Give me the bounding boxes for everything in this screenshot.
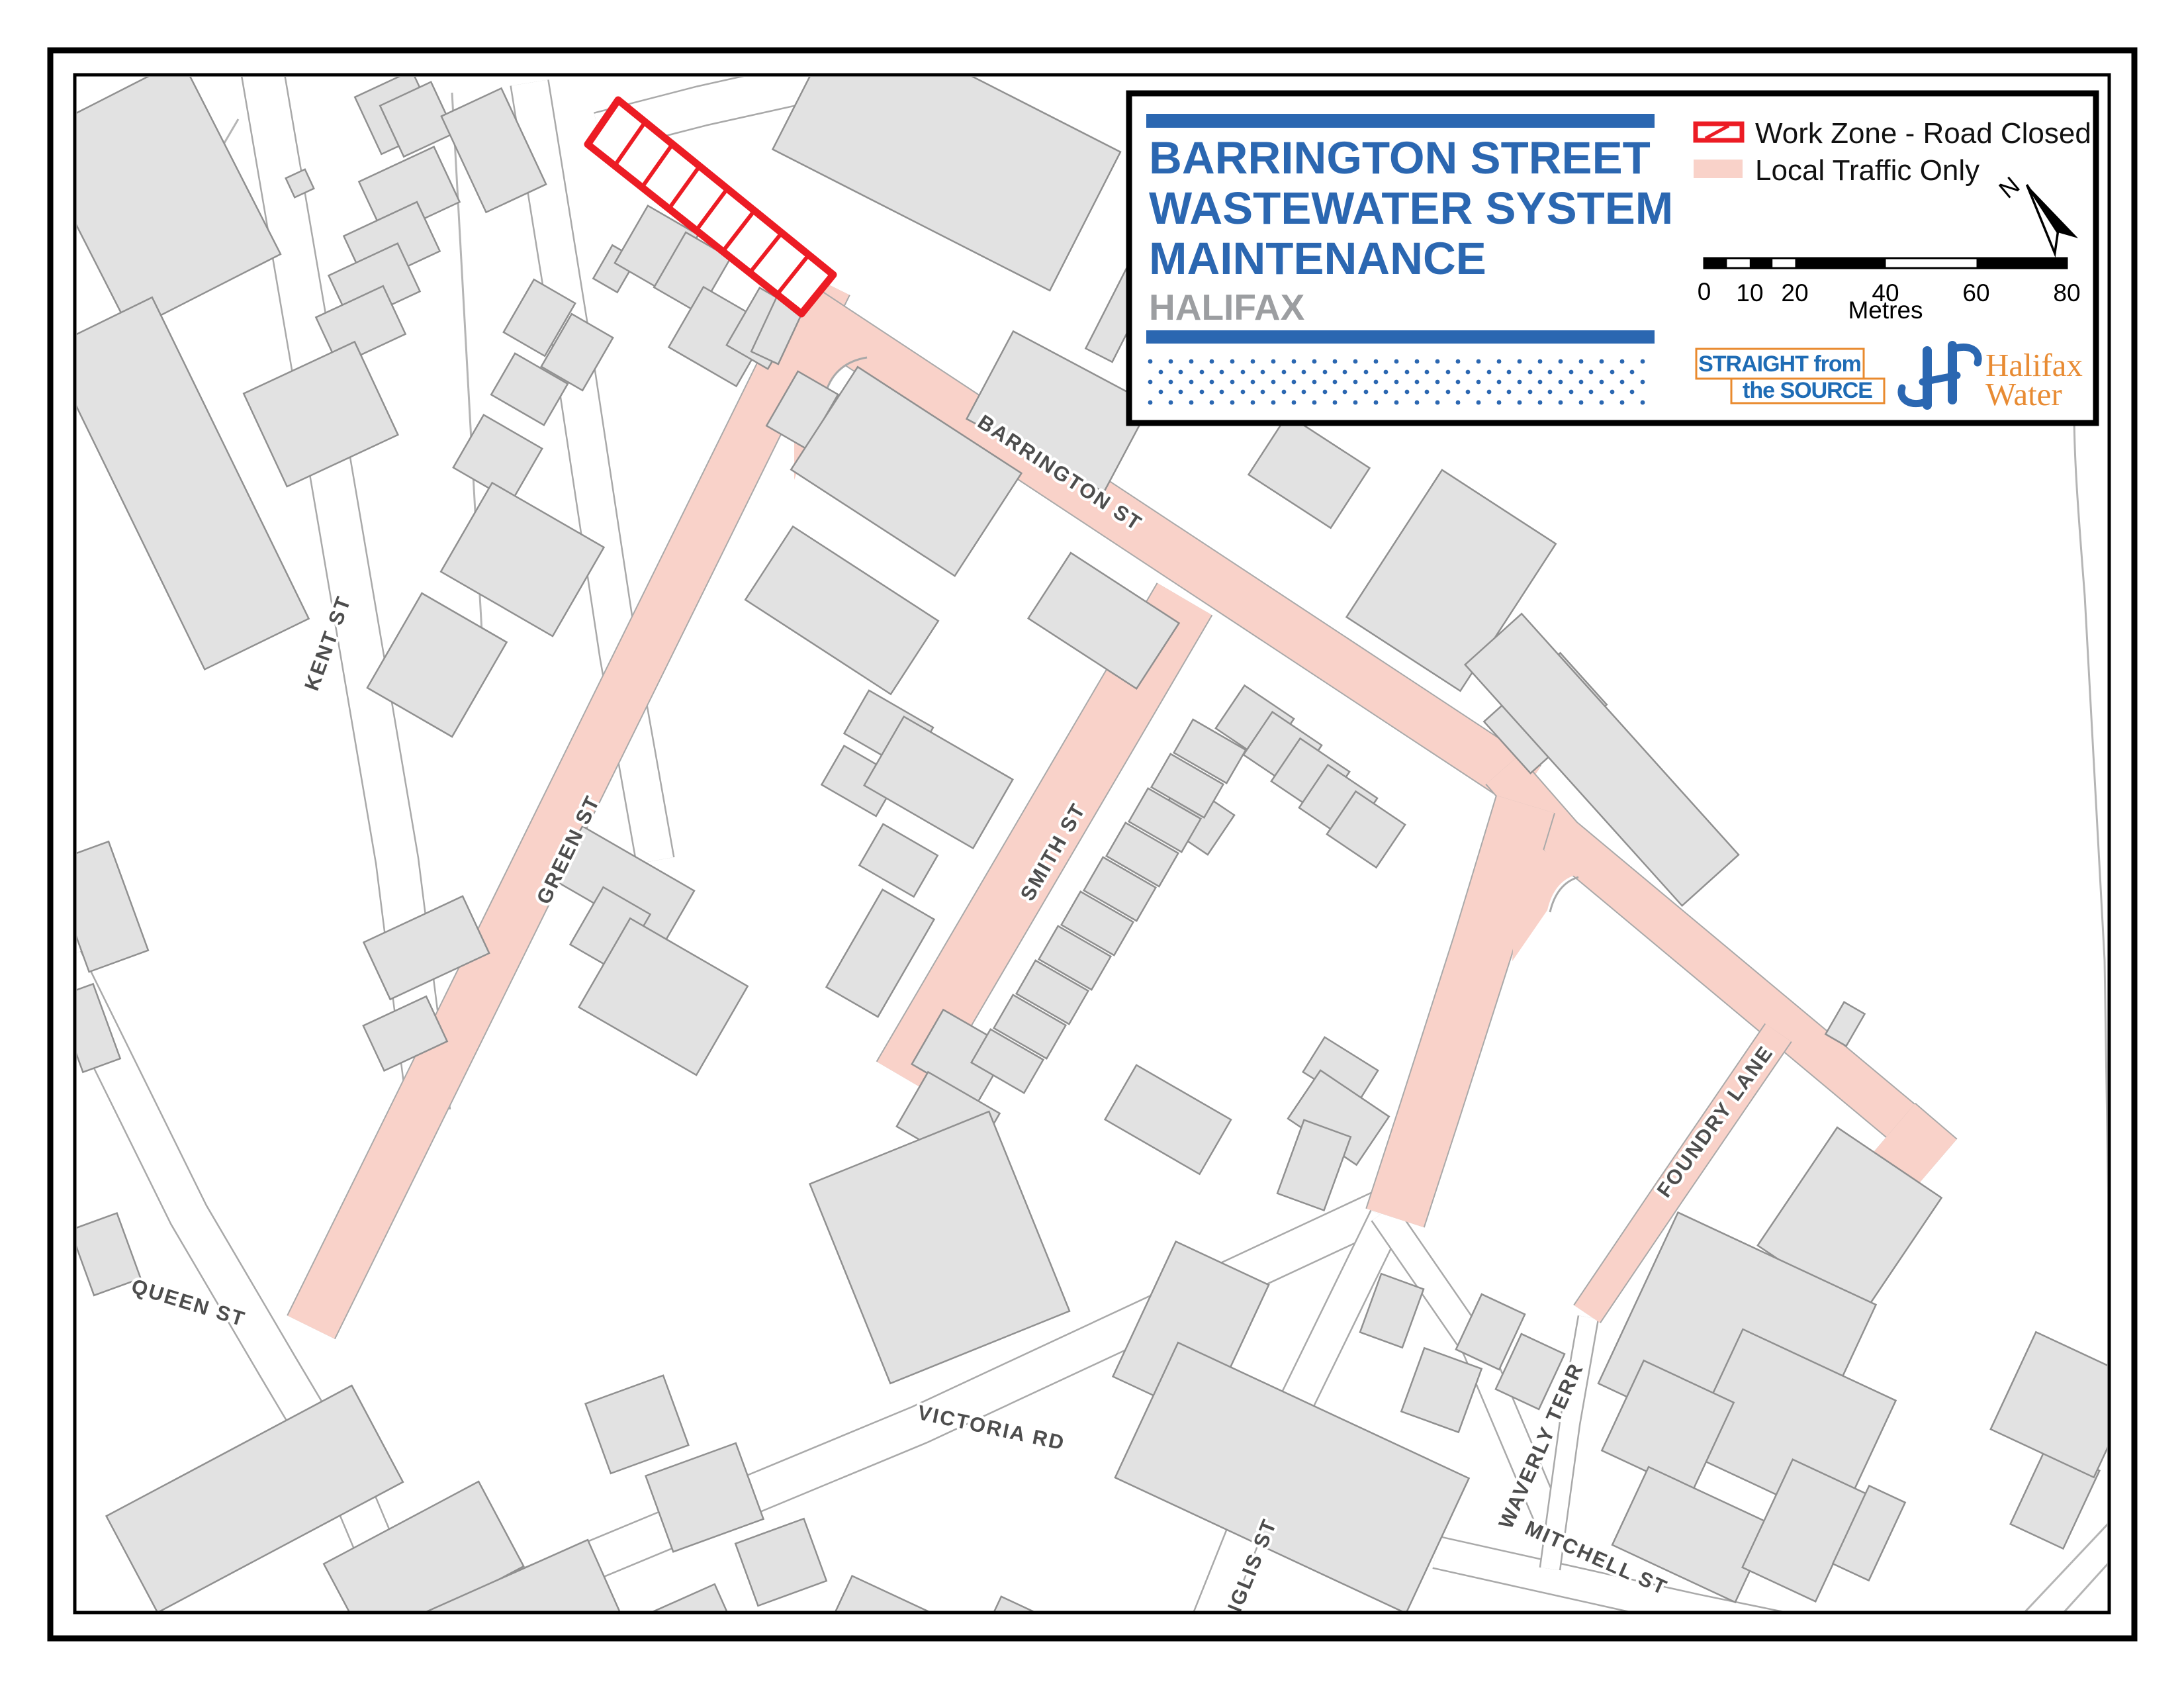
svg-text:the SOURCE: the SOURCE bbox=[1743, 378, 1872, 403]
svg-text:0: 0 bbox=[1698, 278, 1711, 305]
svg-text:BARRINGTON STREET: BARRINGTON STREET bbox=[1149, 132, 1651, 183]
svg-text:10: 10 bbox=[1736, 279, 1763, 306]
svg-text:Work Zone - Road Closed: Work Zone - Road Closed bbox=[1755, 117, 2091, 150]
svg-text:Local Traffic Only: Local Traffic Only bbox=[1755, 154, 1979, 187]
svg-text:WASTEWATER SYSTEM: WASTEWATER SYSTEM bbox=[1149, 183, 1673, 234]
svg-text:20: 20 bbox=[1781, 279, 1808, 306]
svg-text:Metres: Metres bbox=[1848, 297, 1923, 324]
svg-text:STRAIGHT from: STRAIGHT from bbox=[1698, 352, 1861, 377]
svg-text:MAINTENANCE: MAINTENANCE bbox=[1149, 233, 1486, 284]
svg-text:Water: Water bbox=[1985, 376, 2062, 412]
svg-text:80: 80 bbox=[2053, 279, 2080, 306]
svg-text:60: 60 bbox=[1962, 279, 1989, 306]
svg-text:HALIFAX: HALIFAX bbox=[1149, 287, 1305, 328]
